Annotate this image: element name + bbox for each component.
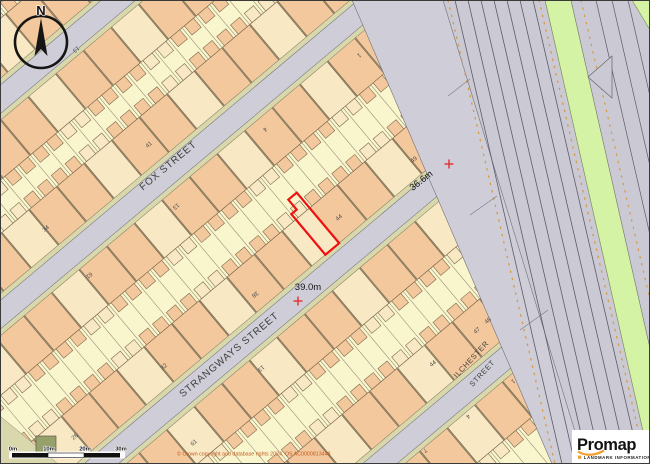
scale-tick-label: 0m xyxy=(9,447,17,453)
promap-map-view: FOX STREETSTRANGWAYS STREETILCHESTERSTRE… xyxy=(0,0,650,464)
scale-tick-label: 20m xyxy=(79,447,91,453)
promap-logo: Promap LANDMARK INFORMATION xyxy=(572,430,650,464)
scale-tick-label: 10m xyxy=(43,447,55,453)
copyright-text: © Crown copyright and database rights 20… xyxy=(177,451,331,458)
compass-north-label: N xyxy=(36,3,45,18)
map-canvas[interactable]: FOX STREETSTRANGWAYS STREETILCHESTERSTRE… xyxy=(0,0,650,464)
measurement-label: 39.0m xyxy=(295,282,321,293)
logo-tagline-text: LANDMARK INFORMATION xyxy=(584,455,650,460)
scale-bar-segment xyxy=(84,453,120,458)
scale-bar-segment xyxy=(48,453,84,458)
scale-bar-segment xyxy=(12,453,48,458)
logo-brand-text: Promap xyxy=(577,436,636,454)
scale-tick-label: 30m xyxy=(115,447,127,453)
logo-bullet-icon xyxy=(578,456,581,459)
